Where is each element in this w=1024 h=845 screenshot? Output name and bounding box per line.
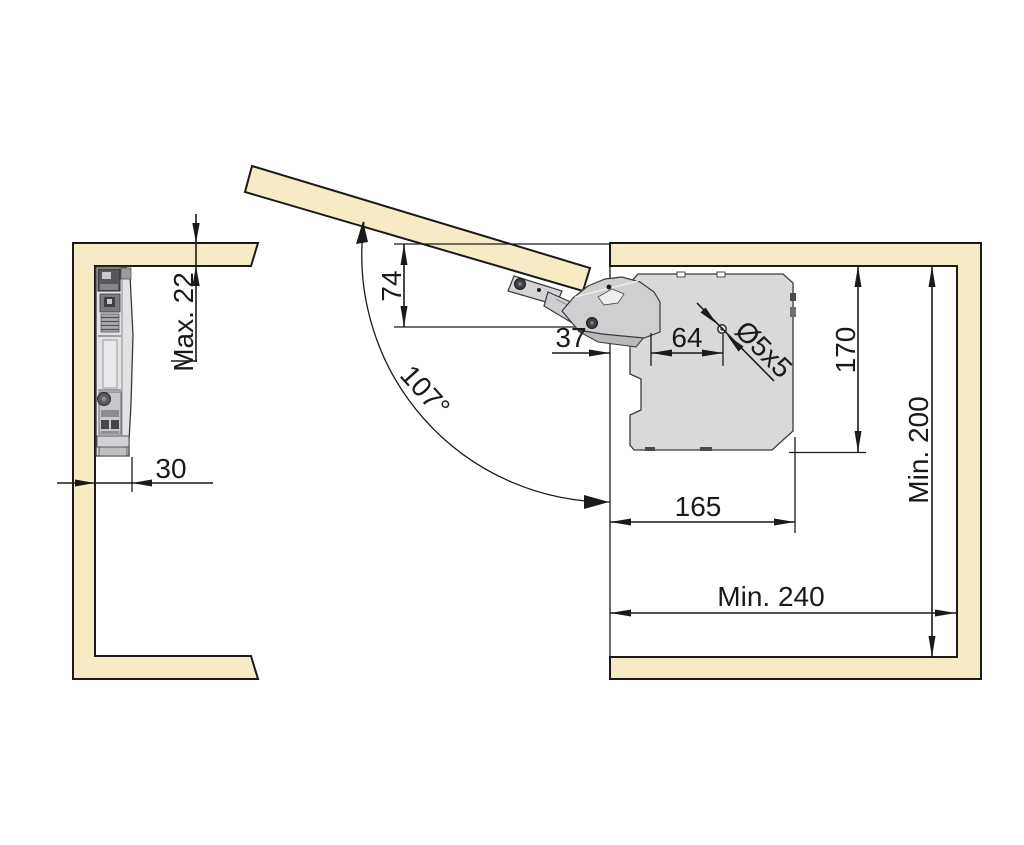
dimension-plate-depth: 165 — [610, 437, 795, 533]
label-front-to-first-hole: 37 — [555, 322, 586, 353]
lift-mechanism-side-view — [96, 267, 133, 456]
dimension-arm-drop: 74 — [376, 244, 408, 327]
label-max-door-thickness: Max. 22 — [168, 272, 199, 372]
arm-pivot-bolt-lower-center — [590, 321, 594, 325]
dimension-plate-height: 170 — [789, 266, 866, 453]
dimension-min-interior-height: Min. 200 — [903, 266, 936, 657]
dimension-max-door-thickness: Max. 22 — [168, 214, 200, 372]
arc-arrow-bottom — [584, 495, 609, 509]
dimension-min-interior-depth: Min. 240 — [610, 581, 956, 617]
flap-door — [245, 166, 590, 291]
label-hole-spacing: 64 — [671, 322, 702, 353]
label-min-interior-height: Min. 200 — [903, 396, 934, 503]
dimension-opening-angle: 107° — [394, 359, 456, 423]
arm-pivot-dot — [537, 288, 541, 292]
arm-pivot-bolt-upper-center — [518, 282, 522, 286]
arm-door-screw-dot — [607, 285, 612, 290]
technical-diagram-lift-mechanism: Max. 22 30 74 107° 37 64 Ø5x5 — [0, 0, 1024, 845]
label-mechanism-depth: 30 — [155, 453, 186, 484]
label-plate-height: 170 — [830, 327, 861, 374]
label-arm-drop: 74 — [376, 270, 407, 301]
label-plate-depth: 165 — [675, 491, 722, 522]
label-min-interior-depth: Min. 240 — [717, 581, 824, 612]
label-opening-angle: 107° — [394, 359, 456, 423]
